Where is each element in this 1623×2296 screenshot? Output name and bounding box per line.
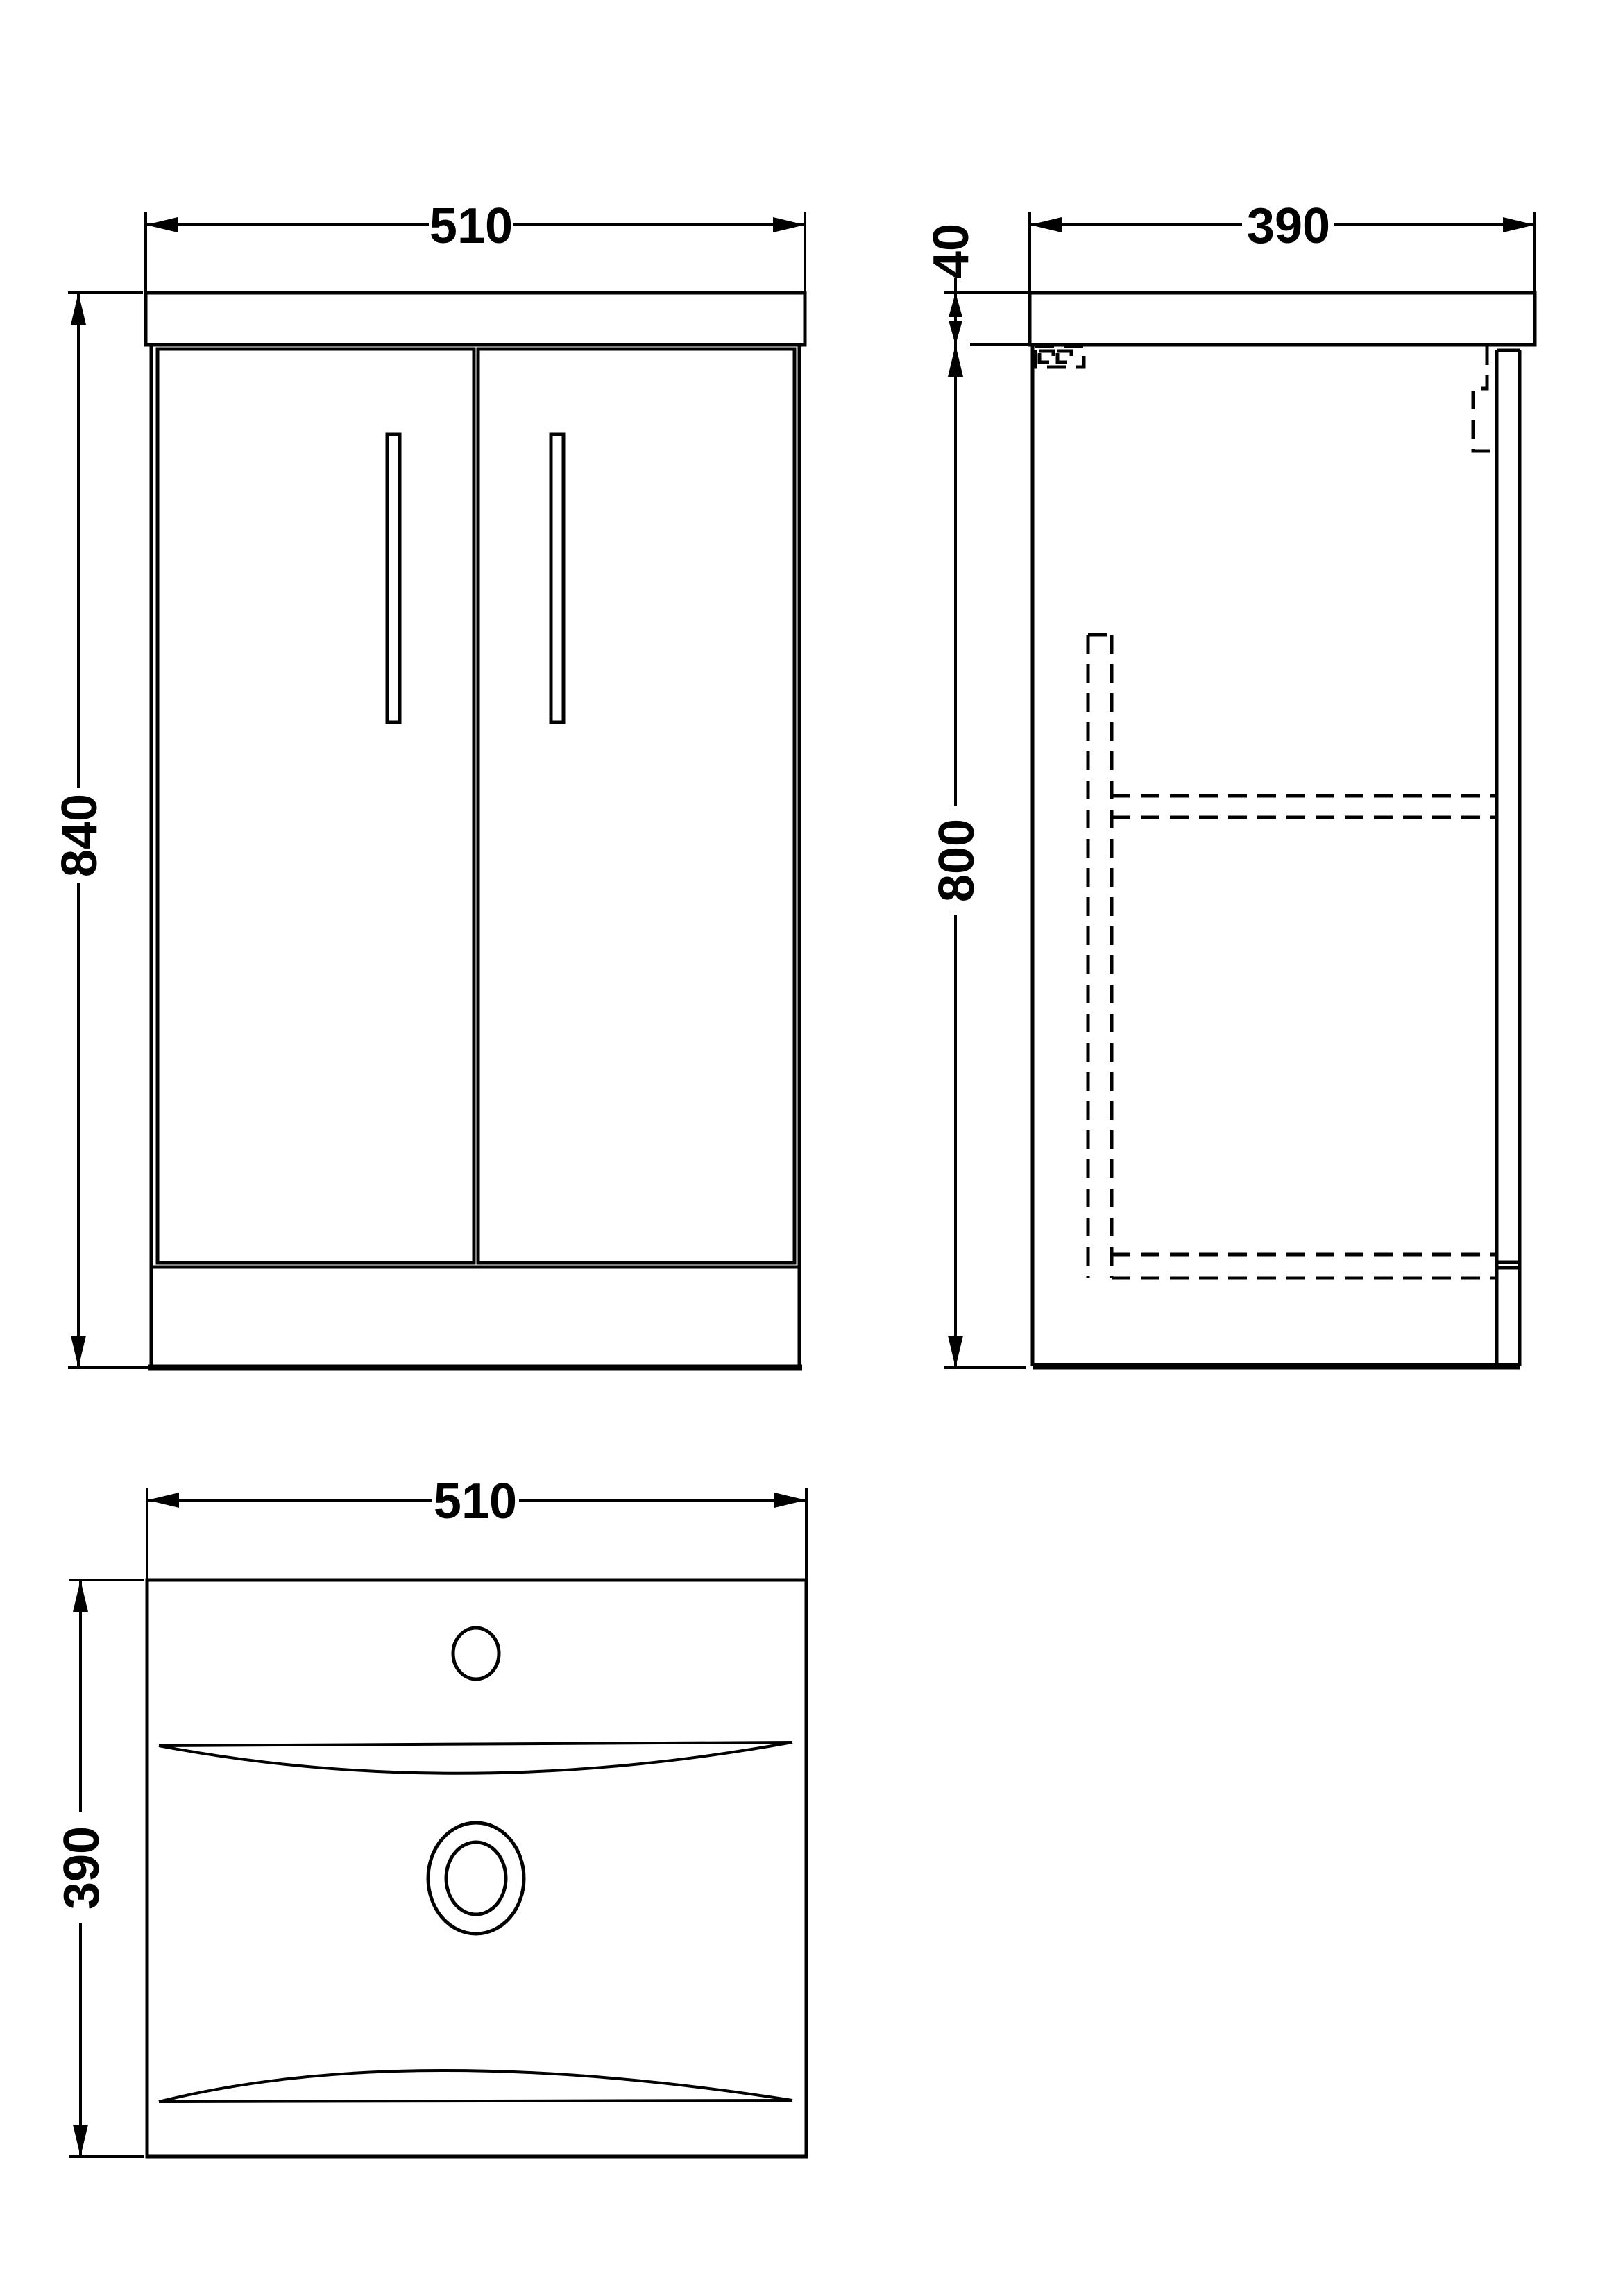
side-cabinet-outline [1033, 345, 1520, 1366]
front-countertop [146, 293, 805, 345]
front-plinth [148, 1267, 802, 1368]
front-width-label: 510 [430, 198, 513, 254]
plinth-panel [151, 1267, 799, 1368]
drawing-sheet: 510 840 [0, 0, 1623, 2296]
side-width-dimension: 390 [1030, 198, 1535, 293]
arrowhead [1030, 217, 1062, 232]
side-width-label: 390 [1247, 198, 1330, 254]
side-hidden-details [1035, 346, 1497, 1278]
arrowhead [73, 1580, 88, 1612]
waste-drain [428, 1823, 524, 1934]
left-door-handle [387, 434, 400, 722]
fixing-bracket-hidden [1473, 346, 1497, 451]
left-door [158, 349, 474, 1263]
arrowhead [948, 345, 963, 377]
front-width-dimension: 510 [146, 198, 805, 293]
bowl-edge-curve [159, 1742, 792, 1774]
bowl-edge-curve [159, 2070, 792, 2102]
arrowhead [73, 2125, 88, 2157]
plan-view: 510 390 [54, 1474, 806, 2157]
side-view: 390 40 800 [924, 198, 1535, 1368]
arrowhead [948, 1336, 963, 1368]
arrowhead [147, 1493, 179, 1508]
arrowhead [1503, 217, 1535, 232]
front-doors [158, 349, 794, 1263]
front-height-dimension: 840 [52, 293, 148, 1368]
tap-hole [453, 1628, 499, 1679]
side-height-label: 800 [929, 819, 985, 902]
basin-front-edge [159, 1742, 792, 1774]
arrowhead [773, 217, 805, 232]
front-height-label: 840 [52, 794, 108, 877]
side-thickness-label: 40 [924, 223, 979, 279]
side-thickness-dimension: 40 [924, 223, 1030, 345]
basin-back-edge [159, 2070, 792, 2102]
arrowhead [146, 217, 178, 232]
drain-inner-ring [446, 1842, 506, 1914]
arrowhead [949, 293, 962, 317]
plan-depth-dimension: 390 [54, 1580, 144, 2157]
plan-depth-label: 390 [54, 1826, 110, 1910]
arrowhead [949, 321, 962, 345]
side-countertop [1030, 293, 1535, 345]
plan-width-dimension: 510 [147, 1474, 806, 1580]
arrowhead [71, 293, 86, 325]
hinge-screw-hidden [1039, 351, 1053, 362]
right-door-handle [551, 434, 563, 722]
drain-outer-ring [428, 1823, 524, 1934]
bowl-edge-line [159, 1742, 792, 1746]
front-view: 510 840 [52, 198, 805, 1368]
plan-width-label: 510 [434, 1474, 517, 1529]
arrowhead [71, 1336, 86, 1368]
right-door [478, 349, 794, 1263]
side-height-dimension: 800 [929, 345, 1026, 1368]
bowl-edge-line [159, 2100, 792, 2102]
arrowhead [774, 1493, 806, 1508]
hinge-screw-hidden [1057, 351, 1071, 362]
